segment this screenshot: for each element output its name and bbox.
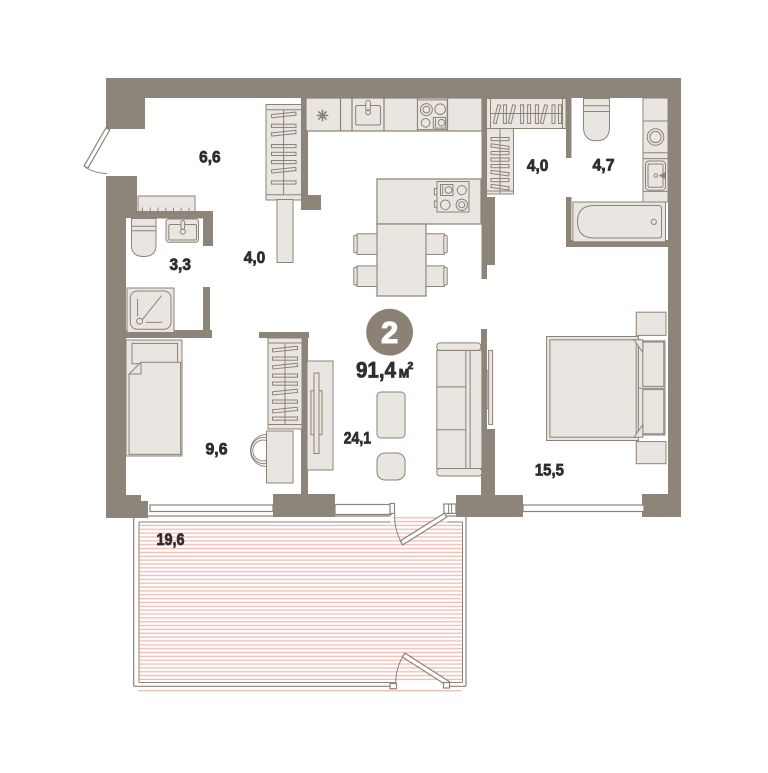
svg-text:4,0: 4,0 [527,157,549,175]
svg-text:24,1: 24,1 [344,430,371,448]
svg-text:3,3: 3,3 [169,256,191,274]
svg-text:15,5: 15,5 [535,462,564,480]
svg-text:4,0: 4,0 [244,249,266,267]
svg-text:19,6: 19,6 [157,531,185,549]
svg-text:4,7: 4,7 [593,157,615,175]
svg-text:2: 2 [381,315,398,350]
svg-text:6,6: 6,6 [199,149,221,167]
svg-text:9,6: 9,6 [206,441,228,459]
svg-text:91,4: 91,4 [356,358,397,383]
svg-text:2: 2 [408,360,414,372]
